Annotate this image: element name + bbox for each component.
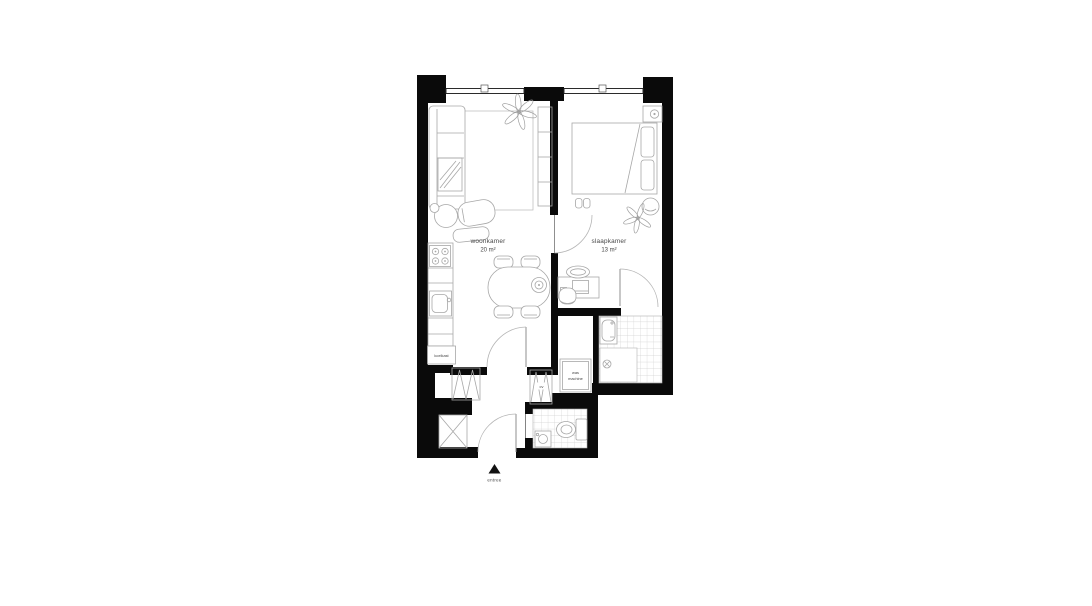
room-label-living: woonkamer 20 m² bbox=[470, 238, 507, 254]
bedroom-name: slaapkamer bbox=[591, 238, 627, 245]
shower-tray bbox=[600, 348, 637, 382]
dining-chair bbox=[521, 256, 540, 268]
bed bbox=[572, 123, 657, 194]
toilet-door-opening bbox=[526, 414, 534, 438]
living-area: 20 m² bbox=[480, 248, 495, 254]
washing-machine: was machine bbox=[560, 359, 591, 392]
washbasin bbox=[600, 317, 617, 344]
entrance-label: entree bbox=[487, 478, 502, 483]
window-living-icon bbox=[446, 85, 524, 94]
dining-chair bbox=[494, 256, 513, 268]
kitchen-sink bbox=[430, 291, 452, 316]
desk-bowl bbox=[567, 266, 590, 278]
floorplan-canvas: koelkast bbox=[0, 0, 1092, 606]
door-living bbox=[487, 327, 526, 367]
cv-label: cv bbox=[540, 384, 544, 389]
fridge-label: koelkast bbox=[434, 353, 449, 358]
door-bedroom bbox=[555, 215, 593, 253]
living-name: woonkamer bbox=[470, 238, 507, 245]
door-bathroom bbox=[620, 269, 658, 307]
entrance-arrow-icon bbox=[489, 464, 501, 474]
door-entrance bbox=[478, 414, 516, 452]
desk-chair bbox=[559, 288, 576, 304]
fridge: koelkast bbox=[428, 346, 456, 364]
side-table bbox=[430, 204, 458, 228]
shelf-unit bbox=[538, 107, 552, 206]
washer-label-line1: was bbox=[572, 370, 579, 375]
washer-label-line2: machine bbox=[568, 376, 583, 381]
entrance-marker: entree bbox=[487, 464, 502, 483]
meter-cupboard bbox=[439, 415, 467, 448]
sofa bbox=[429, 106, 465, 209]
room-label-bedroom: slaapkamer 13 m² bbox=[591, 238, 627, 254]
dining-chair bbox=[521, 306, 540, 318]
slippers bbox=[576, 199, 591, 209]
toilet-sink bbox=[535, 431, 551, 447]
rug bbox=[459, 111, 533, 210]
nightstand bbox=[643, 106, 662, 122]
cv-closet: cv bbox=[530, 370, 552, 404]
pouf bbox=[642, 198, 659, 215]
window-bedroom-icon bbox=[564, 85, 643, 94]
dining-chair bbox=[494, 306, 513, 318]
bedroom-area: 13 m² bbox=[601, 248, 616, 254]
dining-table bbox=[488, 267, 550, 308]
stove bbox=[430, 246, 451, 267]
